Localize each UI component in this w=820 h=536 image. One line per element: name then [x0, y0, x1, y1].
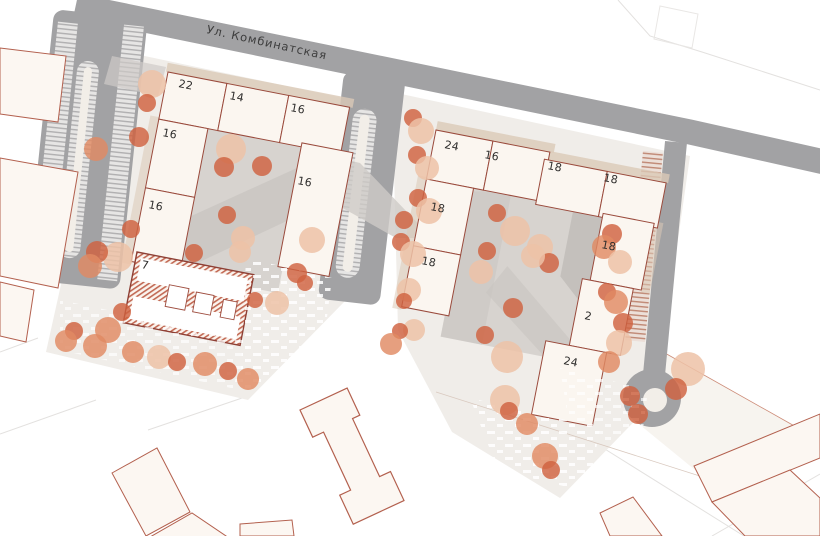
section-label: 24 — [562, 354, 579, 370]
tree — [628, 404, 648, 424]
kindergarten-porch — [193, 292, 214, 315]
tree — [665, 378, 687, 400]
neighbor-building — [0, 48, 66, 122]
section-label: 18 — [546, 159, 563, 175]
tree — [168, 353, 186, 371]
tree — [103, 242, 133, 272]
site-plan-map: Ул. Комбинатская 22 14 16 16 16 16 7 24 … — [0, 0, 820, 536]
tree — [608, 250, 632, 274]
section-label: 14 — [228, 89, 245, 105]
tree — [237, 368, 259, 390]
tree — [219, 362, 237, 380]
tree — [491, 341, 523, 373]
tree — [252, 156, 272, 176]
tree — [185, 244, 203, 262]
tree — [138, 94, 156, 112]
section-label: 18 — [602, 171, 619, 187]
section-label: 18 — [420, 254, 437, 270]
tree — [396, 293, 412, 309]
section-label: 16 — [161, 126, 178, 142]
tree — [55, 330, 77, 352]
tree — [113, 303, 131, 321]
tree — [229, 241, 251, 263]
tree — [147, 345, 171, 369]
tree — [395, 211, 413, 229]
tree — [299, 227, 325, 253]
tree — [122, 220, 140, 238]
tree — [122, 341, 144, 363]
tree — [516, 413, 538, 435]
section-label: 18 — [600, 238, 617, 254]
tree — [503, 298, 523, 318]
tree — [214, 157, 234, 177]
tree — [521, 244, 545, 268]
tree — [78, 254, 102, 278]
tree — [469, 260, 493, 284]
tree — [83, 334, 107, 358]
tree — [500, 216, 530, 246]
tree — [613, 313, 633, 333]
tree — [620, 386, 640, 406]
tree — [478, 242, 496, 260]
tree — [542, 461, 560, 479]
tree — [408, 118, 434, 144]
tree — [218, 206, 236, 224]
tree — [500, 402, 518, 420]
tree — [476, 326, 494, 344]
section-label: 16 — [289, 101, 306, 117]
kindergarten-porch — [220, 299, 237, 319]
tree — [265, 291, 289, 315]
tree — [138, 70, 166, 98]
tree — [129, 127, 149, 147]
tree — [297, 275, 313, 291]
section-label: 22 — [177, 77, 194, 93]
section-label: 16 — [483, 148, 500, 164]
tree — [488, 204, 506, 222]
kindergarten-porch — [165, 285, 189, 310]
section-label: 18 — [429, 200, 446, 216]
section-label: 16 — [296, 174, 313, 190]
tree — [84, 137, 108, 161]
tree — [247, 292, 263, 308]
section-label: 16 — [147, 198, 164, 214]
site-plan-canvas: Ул. Комбинатская 22 14 16 16 16 16 7 24 … — [0, 0, 820, 536]
tree — [193, 352, 217, 376]
tree — [380, 333, 402, 355]
tree — [598, 351, 620, 373]
tree — [604, 290, 628, 314]
tree — [415, 156, 439, 180]
section-label: 24 — [443, 138, 460, 154]
